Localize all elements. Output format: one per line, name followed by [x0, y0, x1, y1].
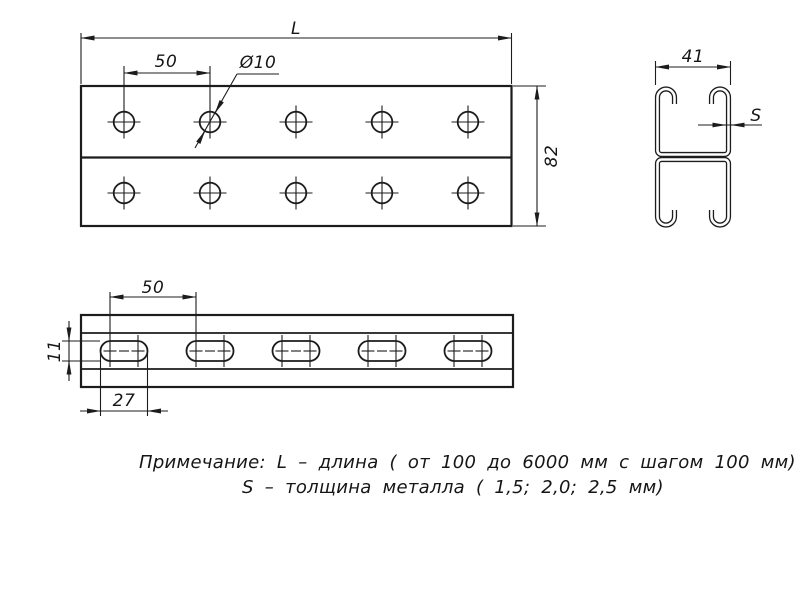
dim-label-hole-pitch: 50	[155, 52, 178, 72]
dim-label-profile-width: 41	[682, 47, 705, 67]
dim-label-slot-pitch: 50	[142, 278, 165, 298]
dim-label-hole-diameter: Ø10	[240, 53, 277, 73]
channel-bottom-profile	[658, 160, 729, 226]
dim-label-length: L	[291, 19, 301, 39]
dim-label-profile-height: 82	[542, 145, 562, 168]
note-line-1: Примечание: L – длина ( от 100 до 6000 м…	[139, 452, 796, 473]
dim-length	[81, 33, 512, 84]
dim-label-slot-length: 27	[113, 391, 136, 411]
drawing-canvas: L 50 Ø10 82 41 S 50 27 11 Примечание: L …	[0, 0, 800, 600]
hole-row-bottom	[108, 177, 485, 210]
drawing-linework	[0, 0, 800, 600]
front-view	[81, 33, 546, 226]
note-line-2: S – толщина металла ( 1,5; 2,0; 2,5 мм)	[242, 477, 664, 498]
hole-row-top	[108, 106, 485, 139]
dim-label-slot-width: 11	[45, 340, 65, 363]
dim-label-thickness: S	[750, 106, 761, 126]
slot-row	[101, 335, 492, 367]
channel-top-profile	[658, 89, 729, 155]
section-view	[656, 61, 763, 225]
